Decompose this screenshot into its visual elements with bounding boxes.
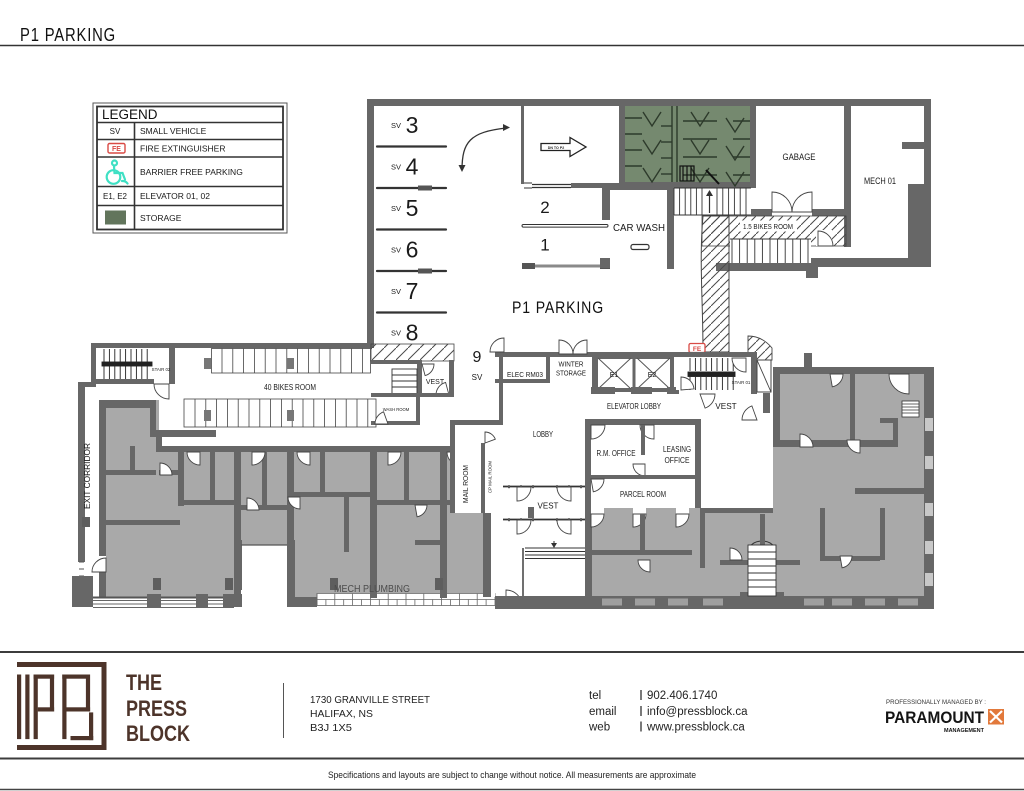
svg-text:4: 4 — [406, 154, 419, 180]
svg-text:6: 6 — [406, 237, 419, 263]
svg-text:Specifications and layouts are: Specifications and layouts are subject t… — [328, 770, 696, 780]
svg-text:SV: SV — [391, 163, 401, 172]
svg-text:ELEVATOR 01, 02: ELEVATOR 01, 02 — [140, 191, 210, 201]
svg-text:VEST: VEST — [715, 402, 736, 411]
svg-text:CAR WASH: CAR WASH — [613, 222, 665, 234]
svg-text:8: 8 — [406, 320, 419, 346]
svg-text:2: 2 — [540, 198, 549, 217]
svg-text:STAIR 02: STAIR 02 — [152, 367, 171, 372]
svg-text:GABAGE: GABAGE — [783, 152, 816, 162]
svg-text:SV: SV — [391, 287, 401, 296]
svg-text:www.pressblock.ca: www.pressblock.ca — [646, 722, 745, 734]
svg-text:DN TO P2: DN TO P2 — [548, 146, 565, 150]
svg-text:FIRE EXTINGUISHER: FIRE EXTINGUISHER — [140, 144, 225, 154]
svg-text:OFFICE: OFFICE — [665, 456, 690, 465]
svg-text:MECH 01: MECH 01 — [864, 176, 896, 186]
svg-text:MANAGEMENT: MANAGEMENT — [944, 728, 985, 734]
svg-text:HALIFAX, NS: HALIFAX, NS — [310, 708, 373, 720]
svg-text:STORAGE: STORAGE — [556, 369, 586, 378]
svg-text:B3J 1X5: B3J 1X5 — [310, 722, 352, 734]
svg-text:EXIT CORRIDOR: EXIT CORRIDOR — [82, 443, 92, 509]
svg-text:ELEC RM03: ELEC RM03 — [507, 370, 543, 379]
svg-text:LEGEND: LEGEND — [102, 107, 158, 122]
svg-text:STORAGE: STORAGE — [140, 213, 182, 223]
svg-text:WASH ROOM: WASH ROOM — [383, 407, 410, 412]
svg-text:SV: SV — [110, 127, 121, 136]
svg-text:FE: FE — [693, 346, 702, 353]
svg-text:SV: SV — [472, 373, 483, 382]
svg-text:email: email — [589, 706, 616, 718]
svg-text:MECH PLUMBING: MECH PLUMBING — [334, 584, 410, 595]
svg-text:PARAMOUNT: PARAMOUNT — [885, 708, 985, 727]
svg-text:R.M. OFFICE: R.M. OFFICE — [597, 449, 636, 458]
svg-text:E2: E2 — [648, 372, 657, 379]
svg-text:SV: SV — [391, 121, 401, 130]
svg-text:info@pressblock.ca: info@pressblock.ca — [647, 706, 748, 718]
svg-text:1.5 BIKES ROOM: 1.5 BIKES ROOM — [743, 224, 793, 231]
svg-text:PRESS: PRESS — [126, 696, 187, 721]
svg-text:P1 PARKING: P1 PARKING — [20, 25, 116, 45]
svg-text:P1 PARKING: P1 PARKING — [512, 299, 604, 317]
svg-text:THE: THE — [126, 670, 162, 695]
svg-text:SMALL VEHICLE: SMALL VEHICLE — [140, 126, 207, 136]
svg-text:WINTER: WINTER — [559, 360, 584, 369]
svg-text:1: 1 — [540, 236, 549, 255]
svg-text:E1, E2: E1, E2 — [103, 192, 128, 201]
svg-text:PARCEL ROOM: PARCEL ROOM — [620, 490, 666, 499]
svg-text:SV: SV — [391, 246, 401, 255]
svg-text:BLOCK: BLOCK — [126, 721, 190, 746]
svg-text:CP MAIL ROOM: CP MAIL ROOM — [488, 461, 493, 494]
svg-text:STAIR 01: STAIR 01 — [732, 380, 751, 385]
svg-text:5: 5 — [406, 195, 419, 221]
svg-text:PROFESSIONALLY MANAGED BY :: PROFESSIONALLY MANAGED BY : — [886, 700, 986, 706]
svg-text:FE: FE — [112, 146, 121, 153]
svg-text:40 BIKES ROOM: 40 BIKES ROOM — [264, 383, 316, 392]
svg-text:tel: tel — [589, 690, 601, 702]
svg-text:7: 7 — [406, 278, 419, 304]
svg-text:902.406.1740: 902.406.1740 — [647, 690, 717, 702]
svg-text:web: web — [588, 722, 610, 734]
svg-text:MAIL ROOM: MAIL ROOM — [461, 465, 470, 503]
svg-text:LEASING: LEASING — [663, 445, 691, 454]
svg-text:BARRIER FREE PARKING: BARRIER FREE PARKING — [140, 167, 243, 177]
svg-text:E1: E1 — [610, 372, 619, 379]
svg-text:ELEVATOR LOBBY: ELEVATOR LOBBY — [607, 402, 661, 411]
svg-text:VEST: VEST — [538, 502, 559, 511]
svg-text:LOBBY: LOBBY — [533, 430, 553, 439]
svg-text:SV: SV — [391, 329, 401, 338]
svg-text:3: 3 — [406, 112, 419, 138]
svg-text:SV: SV — [391, 204, 401, 213]
svg-text:9: 9 — [473, 349, 482, 366]
svg-text:1730 GRANVILLE STREET: 1730 GRANVILLE STREET — [310, 694, 431, 706]
